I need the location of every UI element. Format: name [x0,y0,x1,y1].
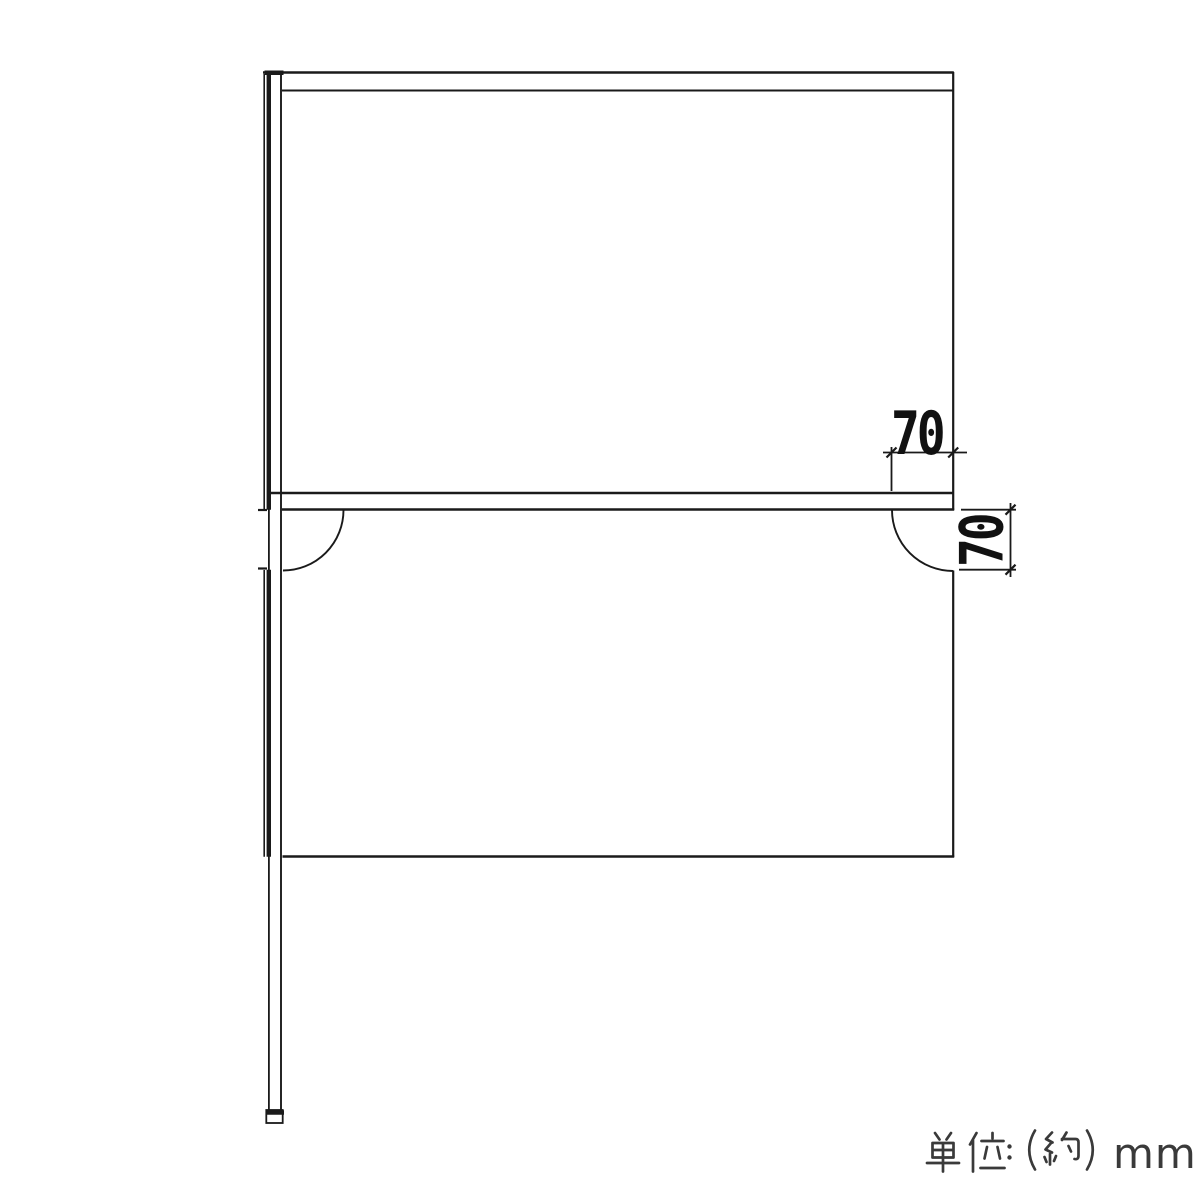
dimension-vertical-70: 70 [947,503,1017,577]
dim-v-value-wrap: 70 [947,515,1017,567]
dimension-horizontal-70: 70 [883,399,967,491]
corner-notch-arc-left [283,510,344,571]
dim-h-value: 70 [891,399,943,469]
top-board-edge [263,73,954,91]
product-outline [258,71,954,1124]
paren-open-glyph [1029,1131,1035,1170]
dimension-diagram: 70 70 [0,0,1200,1200]
colon-glyph [1007,1144,1011,1159]
lower-panel [283,510,955,857]
paren-close-glyph [1087,1131,1093,1170]
technical-drawing-canvas: 70 70 [0,0,1200,1200]
unit-mm-label: mm [1113,1129,1197,1178]
kanji-yaku-glyph [1045,1133,1079,1165]
unit-note: mm [927,1129,1197,1178]
corner-notch-arc-right [892,510,953,571]
kanji-i-glyph [970,1133,1005,1172]
middle-shelf-edge [268,493,954,510]
dim-h-value-wrap: 70 [891,399,943,469]
panel-left-edges [258,74,269,857]
kanji-tan-glyph [927,1133,959,1172]
pole-foot [266,1110,285,1123]
dim-v-value: 70 [947,515,1017,567]
